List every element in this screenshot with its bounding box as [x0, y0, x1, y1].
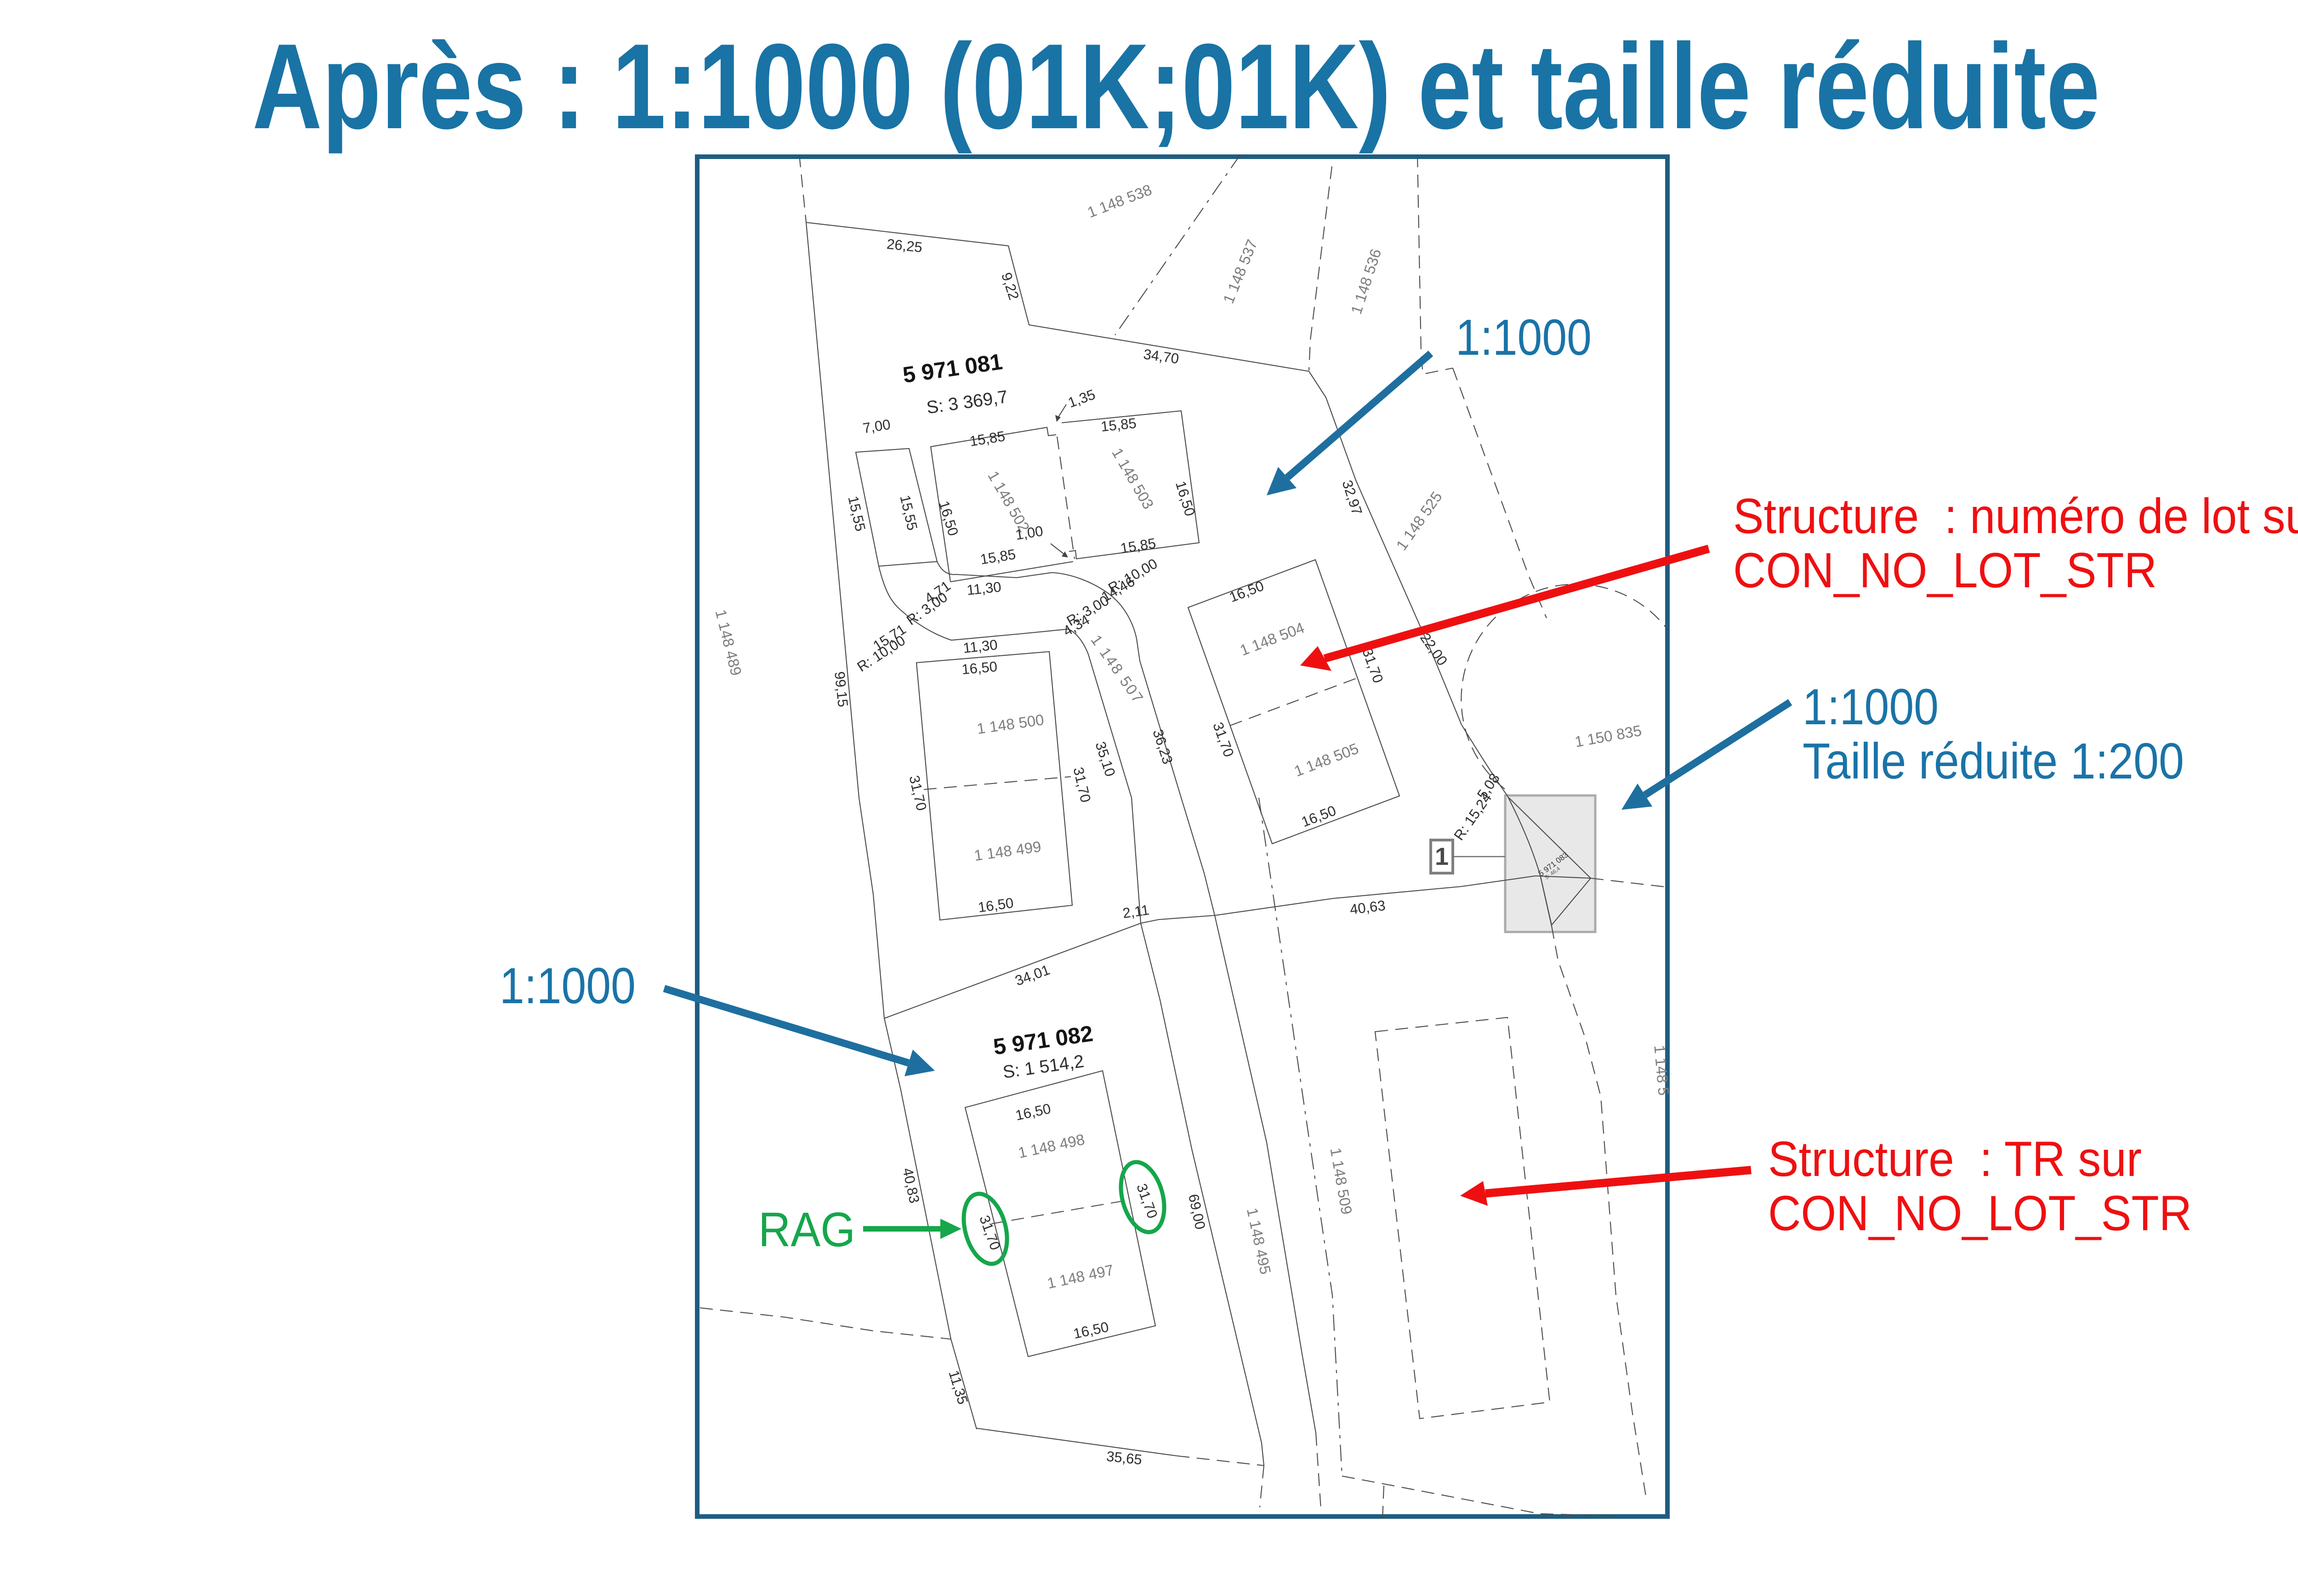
svg-text:Taille réduite 1:200: Taille réduite 1:200 — [1803, 733, 2184, 789]
svg-text:CON_NO_LOT_STR: CON_NO_LOT_STR — [1768, 1185, 2192, 1241]
svg-text:1:1000: 1:1000 — [1456, 309, 1592, 366]
svg-text:16,50: 16,50 — [961, 659, 998, 678]
svg-text:1:1000: 1:1000 — [1803, 679, 1939, 735]
svg-text:1: 1 — [1435, 843, 1449, 870]
svg-text:Structure : TR sur: Structure : TR sur — [1768, 1131, 2142, 1187]
svg-text:CON_NO_LOT_STR: CON_NO_LOT_STR — [1733, 542, 2157, 598]
svg-text:RAG: RAG — [758, 1203, 855, 1257]
svg-text:1:1000: 1:1000 — [500, 958, 636, 1014]
svg-text:Après : 1:1000 (01K;01K) et ta: Après : 1:1000 (01K;01K) et taille rédui… — [252, 18, 2100, 155]
svg-text:Structure : numéro de lot sur: Structure : numéro de lot sur — [1733, 488, 2298, 544]
